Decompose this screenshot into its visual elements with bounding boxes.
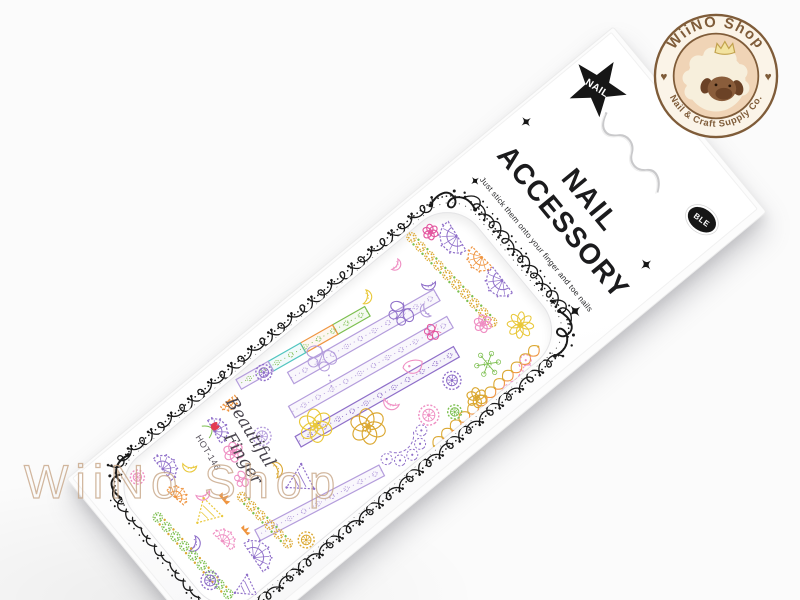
tulip-icon bbox=[202, 418, 222, 438]
product-photo: NAIL BLE NAIL ACCESSORY Just stick them … bbox=[0, 0, 800, 600]
sticker-moon bbox=[392, 259, 403, 272]
sticker-moon bbox=[363, 290, 372, 305]
sticker-flower6 bbox=[470, 311, 496, 337]
sticker-rosette bbox=[445, 402, 465, 422]
heart-icon: ♥ bbox=[765, 69, 772, 83]
watermark: WiiNo Shop bbox=[24, 454, 342, 509]
sticker-flower6 bbox=[419, 221, 442, 244]
sticker-fan bbox=[212, 523, 241, 551]
sticker-flower8 bbox=[502, 306, 539, 343]
sticker-fan bbox=[478, 266, 514, 304]
sticker-rosette bbox=[439, 368, 464, 393]
sticker-crown bbox=[241, 523, 253, 535]
sticker-tri bbox=[229, 573, 259, 600]
sticker-snow bbox=[470, 346, 505, 381]
sticker-moon bbox=[381, 399, 399, 412]
shop-logo: WiiNO Shop Nail & Craft Supply Co. ♥ ♥ bbox=[652, 12, 780, 140]
heart-icon: ♥ bbox=[660, 69, 667, 83]
